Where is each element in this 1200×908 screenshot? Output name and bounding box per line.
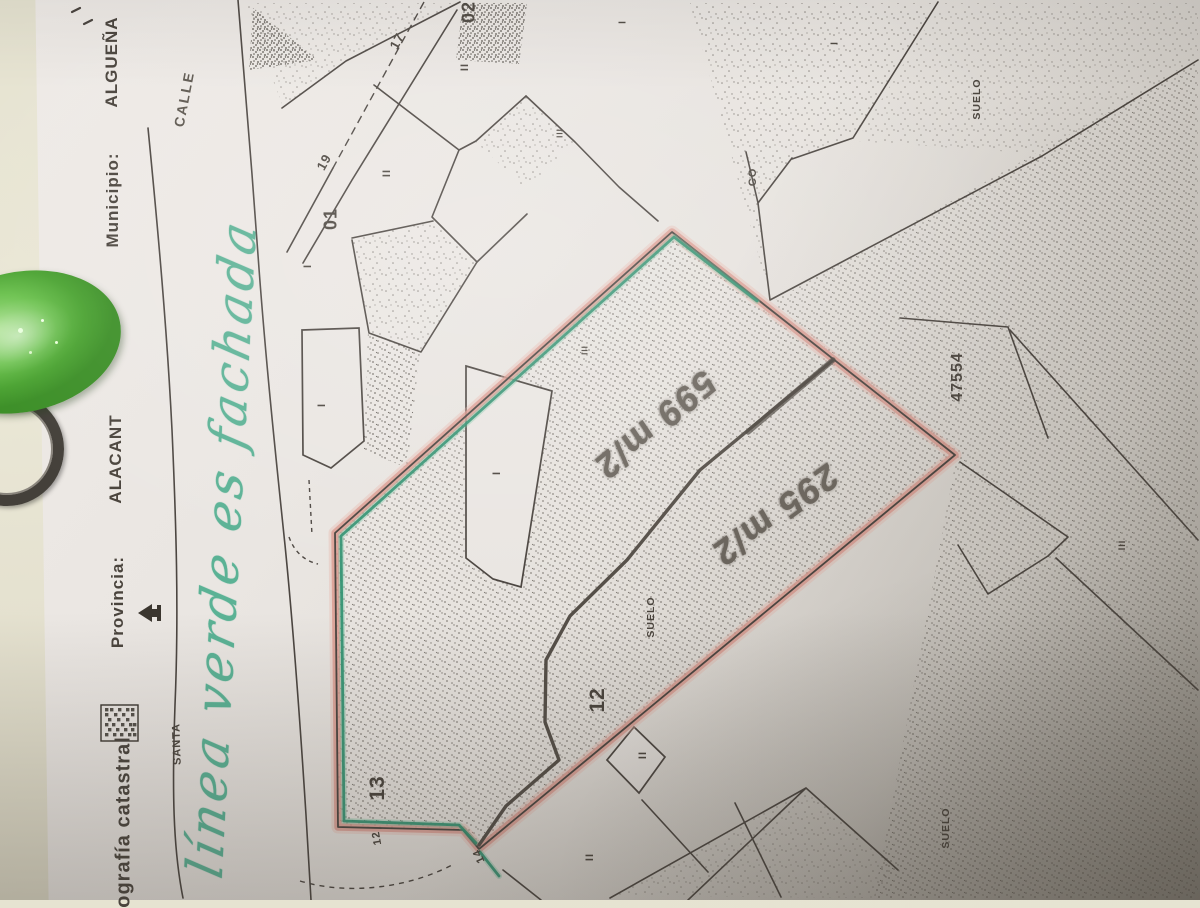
municipio-label: Municipio: — [103, 153, 123, 248]
roman-mark-10: II — [637, 751, 649, 759]
roman-mark-7: I — [830, 41, 841, 45]
parcel-number-12: 12 — [586, 687, 610, 712]
house-number-12: 12 — [370, 830, 384, 846]
roman-mark-9: III — [1117, 540, 1127, 551]
suelo-label-3: SUELO — [940, 807, 952, 848]
parcel-number-13: 13 — [366, 775, 390, 800]
roman-mark-11: II — [584, 853, 596, 861]
suelo-label-1: SUELO — [971, 78, 983, 119]
co-label: CO — [747, 168, 759, 187]
roman-mark-5: I — [491, 471, 503, 475]
magnet-sparkles — [18, 328, 23, 333]
provincia-value: ALACANT — [106, 414, 126, 503]
parcel-ref-47554: 47554 — [949, 352, 967, 402]
parcel-number-02: 02 — [459, 1, 480, 23]
roman-mark-12: III — [556, 128, 565, 138]
roman-mark-8: I — [316, 403, 328, 407]
suelo-label-2: SUELO — [645, 596, 657, 637]
north-arrow-icon — [138, 604, 161, 622]
roman-mark-1: II — [459, 63, 471, 71]
parcel-number-01: 01 — [321, 208, 342, 230]
photo-of-cadastral-map: Municipio: ALGUEÑA Provincia: ALACANT og… — [0, 0, 1200, 900]
map-footer-title: ografía catastral — [113, 736, 136, 908]
municipio-value: ALGUEÑA — [102, 16, 122, 107]
roman-mark-3: I — [302, 264, 314, 268]
roman-mark-2: II — [381, 169, 393, 177]
provincia-label: Provincia: — [108, 556, 128, 648]
roman-mark-6: I — [618, 20, 629, 24]
roman-mark-4: III — [581, 345, 590, 355]
